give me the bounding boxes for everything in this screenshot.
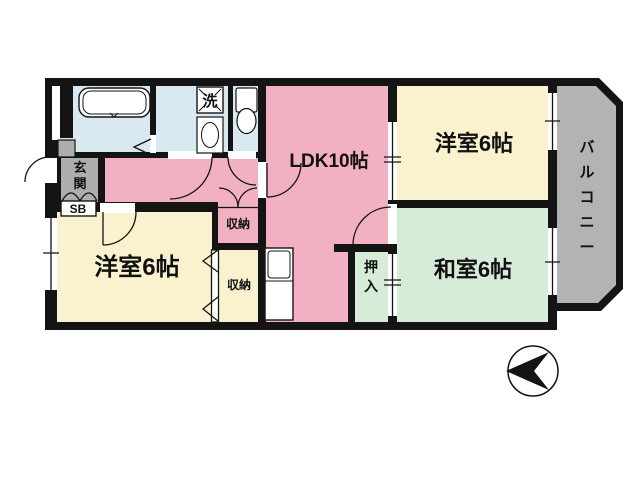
floorplan-page: LDK10帖 洋室6帖 和室6帖 洋室6帖 バルコニー 玄関 SB 収納 収納 … bbox=[0, 0, 640, 480]
bathtub bbox=[79, 88, 150, 117]
kitchen-unit bbox=[265, 248, 293, 320]
storage-upper-label: 収納 bbox=[226, 216, 250, 231]
closet-wall-stub bbox=[334, 244, 348, 252]
toilet-door-gap bbox=[228, 151, 256, 159]
meter-box bbox=[58, 140, 75, 157]
western-room-upper-label: 洋室6帖 bbox=[435, 131, 513, 156]
shoe-box-label: SB bbox=[70, 202, 87, 216]
washer-label: 洗 bbox=[202, 92, 217, 110]
pillar bbox=[60, 86, 73, 138]
storage-lower-label: 収納 bbox=[227, 277, 251, 292]
ldk-hall-door-gap bbox=[258, 162, 266, 198]
front-door-gap bbox=[45, 158, 57, 183]
western-room-lower-label: 洋室6帖 bbox=[94, 253, 179, 281]
entrance-label: 玄関 bbox=[73, 160, 86, 191]
floorplan-svg: LDK10帖 洋室6帖 和室6帖 洋室6帖 バルコニー 玄関 SB 収納 収納 … bbox=[0, 0, 640, 480]
bath-fold-door-gap bbox=[150, 135, 156, 153]
bath-window-gap bbox=[52, 86, 60, 140]
hallway-floor bbox=[105, 158, 258, 202]
compass bbox=[506, 346, 558, 396]
toilet-bowl bbox=[237, 109, 256, 134]
western-lower-door-gap bbox=[100, 203, 135, 213]
japanese-room-label: 和室6帖 bbox=[434, 257, 512, 282]
storage-lower-door-band bbox=[212, 250, 219, 322]
japanese-door-gap bbox=[388, 204, 397, 244]
ldk-label: LDK10帖 bbox=[289, 149, 368, 172]
